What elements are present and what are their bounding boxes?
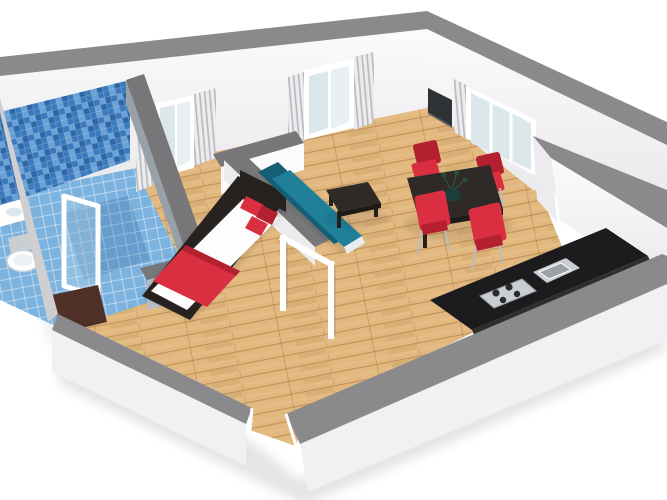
window-pane — [177, 101, 190, 167]
plant-leaf — [442, 173, 447, 178]
burner — [505, 283, 512, 290]
window-pane — [309, 71, 328, 134]
burner — [500, 297, 506, 303]
floorplan-render — [0, 0, 667, 500]
curtain-left — [454, 79, 468, 140]
plant-leaf — [463, 178, 468, 183]
washbasin-bowl — [6, 208, 22, 217]
shower-glass — [64, 196, 98, 296]
burner — [492, 289, 499, 296]
burner — [514, 291, 520, 297]
window-pane — [331, 66, 349, 129]
curtain-right — [194, 88, 216, 166]
curtain-right — [354, 52, 374, 130]
floorplan-svg — [0, 0, 667, 500]
plant-leaf — [455, 171, 460, 176]
toilet-seat — [13, 254, 33, 266]
